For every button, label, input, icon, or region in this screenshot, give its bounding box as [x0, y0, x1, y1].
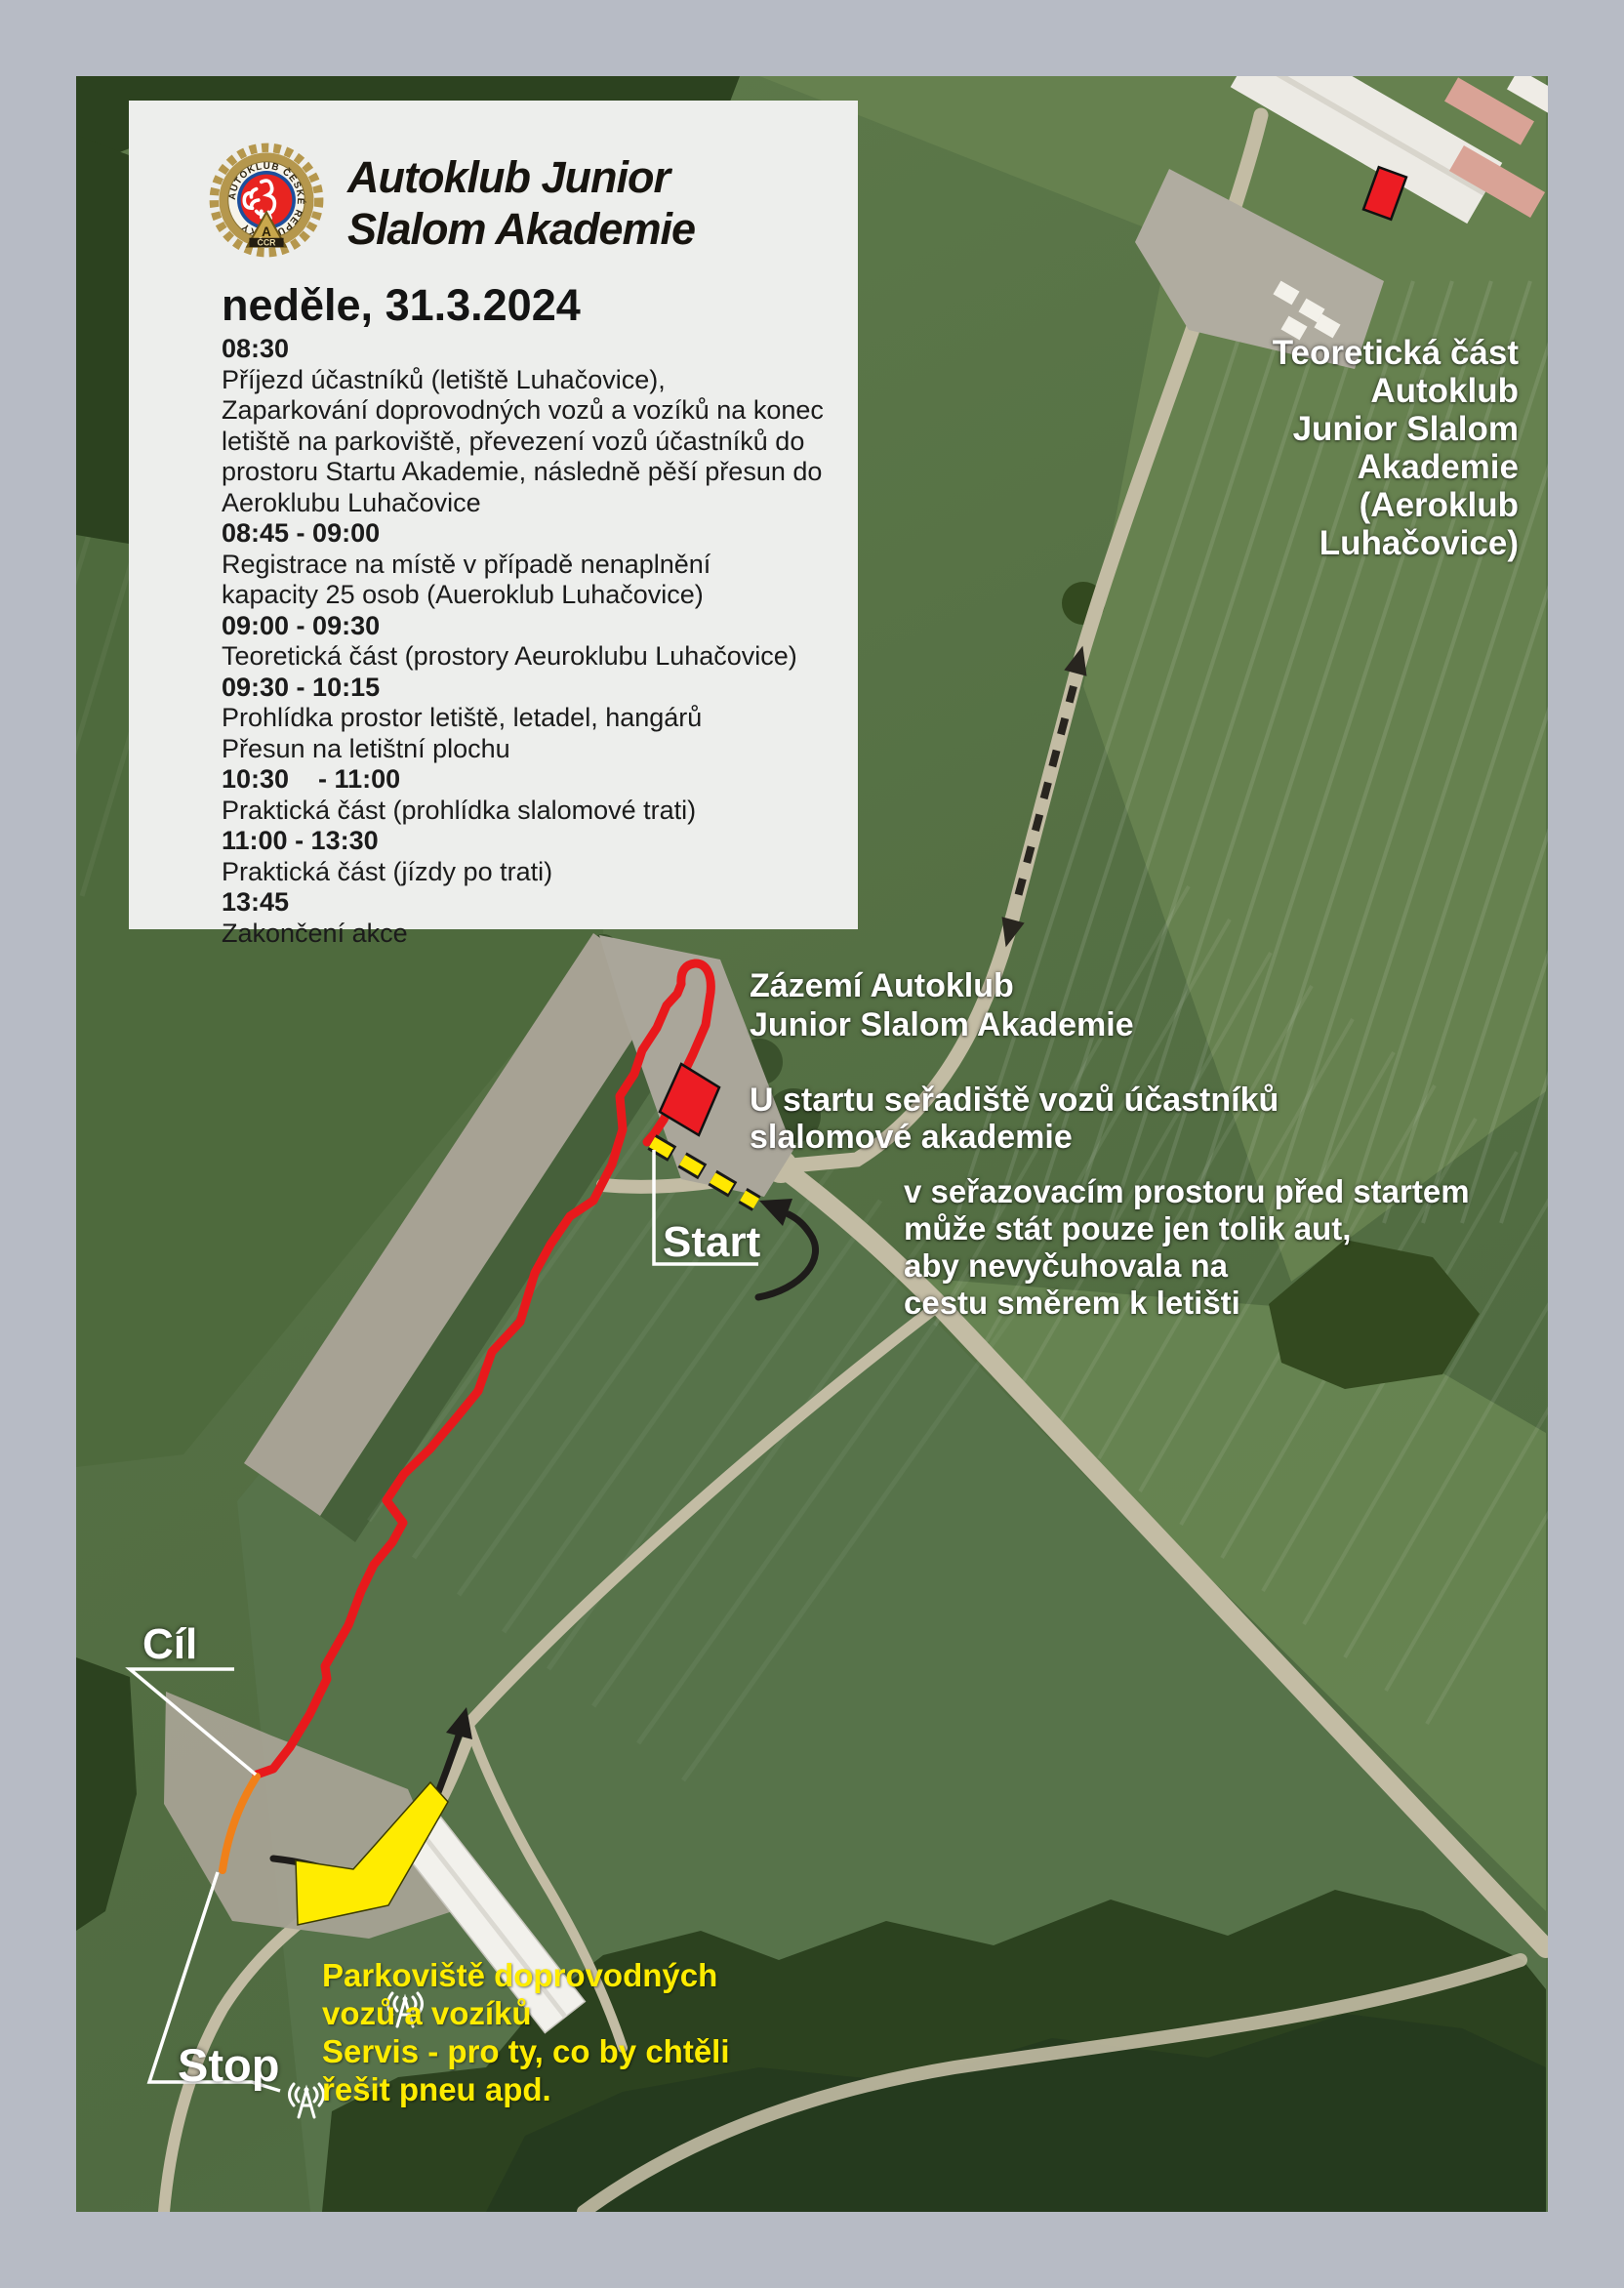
- schedule-line: letiště na parkoviště, převezení vozů úč…: [222, 427, 885, 458]
- label-finish: Cíl: [142, 1620, 197, 1669]
- schedule-line: 09:00 - 09:30: [222, 611, 885, 642]
- schedule-line: Zakončení akce: [222, 919, 885, 950]
- schedule-line: Aeroklubu Luhačovice: [222, 488, 885, 519]
- schedule-panel: AUTOKLUB ČESKÉ REPUBLIKY A ČCR Autoklub …: [129, 101, 858, 929]
- schedule-line: 10:30 - 11:00: [222, 764, 885, 796]
- autoklub-logo-icon: AUTOKLUB ČESKÉ REPUBLIKY A ČCR: [206, 140, 327, 261]
- schedule-line: kapacity 25 osob (Aueroklub Luhačovice): [222, 580, 885, 611]
- event-title: Autoklub Junior Slalom Akademie: [347, 151, 695, 255]
- schedule-line: Teoretická část (prostory Aeuroklubu Luh…: [222, 641, 885, 673]
- schedule-line: Praktická část (jízdy po trati): [222, 857, 885, 888]
- schedule-line: Prohlídka prostor letiště, letadel, hang…: [222, 703, 885, 734]
- label-theory-location: Teoretická část Autoklub Junior Slalom A…: [1273, 334, 1519, 562]
- schedule-line: 08:30: [222, 334, 885, 365]
- schedule-line: 08:45 - 09:00: [222, 518, 885, 550]
- schedule-line: Praktická část (prohlídka slalomové trat…: [222, 796, 885, 827]
- label-staging-note: v seřazovacím prostoru před startem může…: [904, 1173, 1470, 1322]
- schedule-line: 09:30 - 10:15: [222, 673, 885, 704]
- label-parking: Parkoviště doprovodných vozů a vozíků Se…: [322, 1956, 730, 2108]
- schedule-line: 13:45: [222, 887, 885, 919]
- logo-badge-text: ČCR: [258, 237, 277, 248]
- schedule-line: Registrace na místě v případě nenaplnění: [222, 550, 885, 581]
- poster-page: AUTOKLUB ČESKÉ REPUBLIKY A ČCR Autoklub …: [0, 0, 1624, 2288]
- schedule-line: Příjezd účastníků (letiště Luhačovice),: [222, 365, 885, 396]
- schedule-line: Přesun na letištní plochu: [222, 734, 885, 765]
- schedule-list: 08:30Příjezd účastníků (letiště Luhačovi…: [222, 334, 885, 949]
- event-date: neděle, 31.3.2024: [222, 280, 581, 331]
- event-title-line1: Autoklub Junior: [347, 152, 670, 202]
- schedule-line: prostoru Startu Akademie, následně pěší …: [222, 457, 885, 488]
- aerial-photo: AUTOKLUB ČESKÉ REPUBLIKY A ČCR Autoklub …: [76, 76, 1548, 2212]
- schedule-line: Zaparkování doprovodných vozů a vozíků n…: [222, 395, 885, 427]
- label-start: Start: [663, 1218, 760, 1267]
- label-start-area: U startu seřadiště vozů účastníků slalom…: [750, 1082, 1279, 1156]
- label-paddock: Zázemí Autoklub Junior Slalom Akademie: [750, 966, 1134, 1044]
- label-stop: Stop: [178, 2038, 279, 2092]
- event-title-line2: Slalom Akademie: [347, 204, 695, 254]
- schedule-line: 11:00 - 13:30: [222, 826, 885, 857]
